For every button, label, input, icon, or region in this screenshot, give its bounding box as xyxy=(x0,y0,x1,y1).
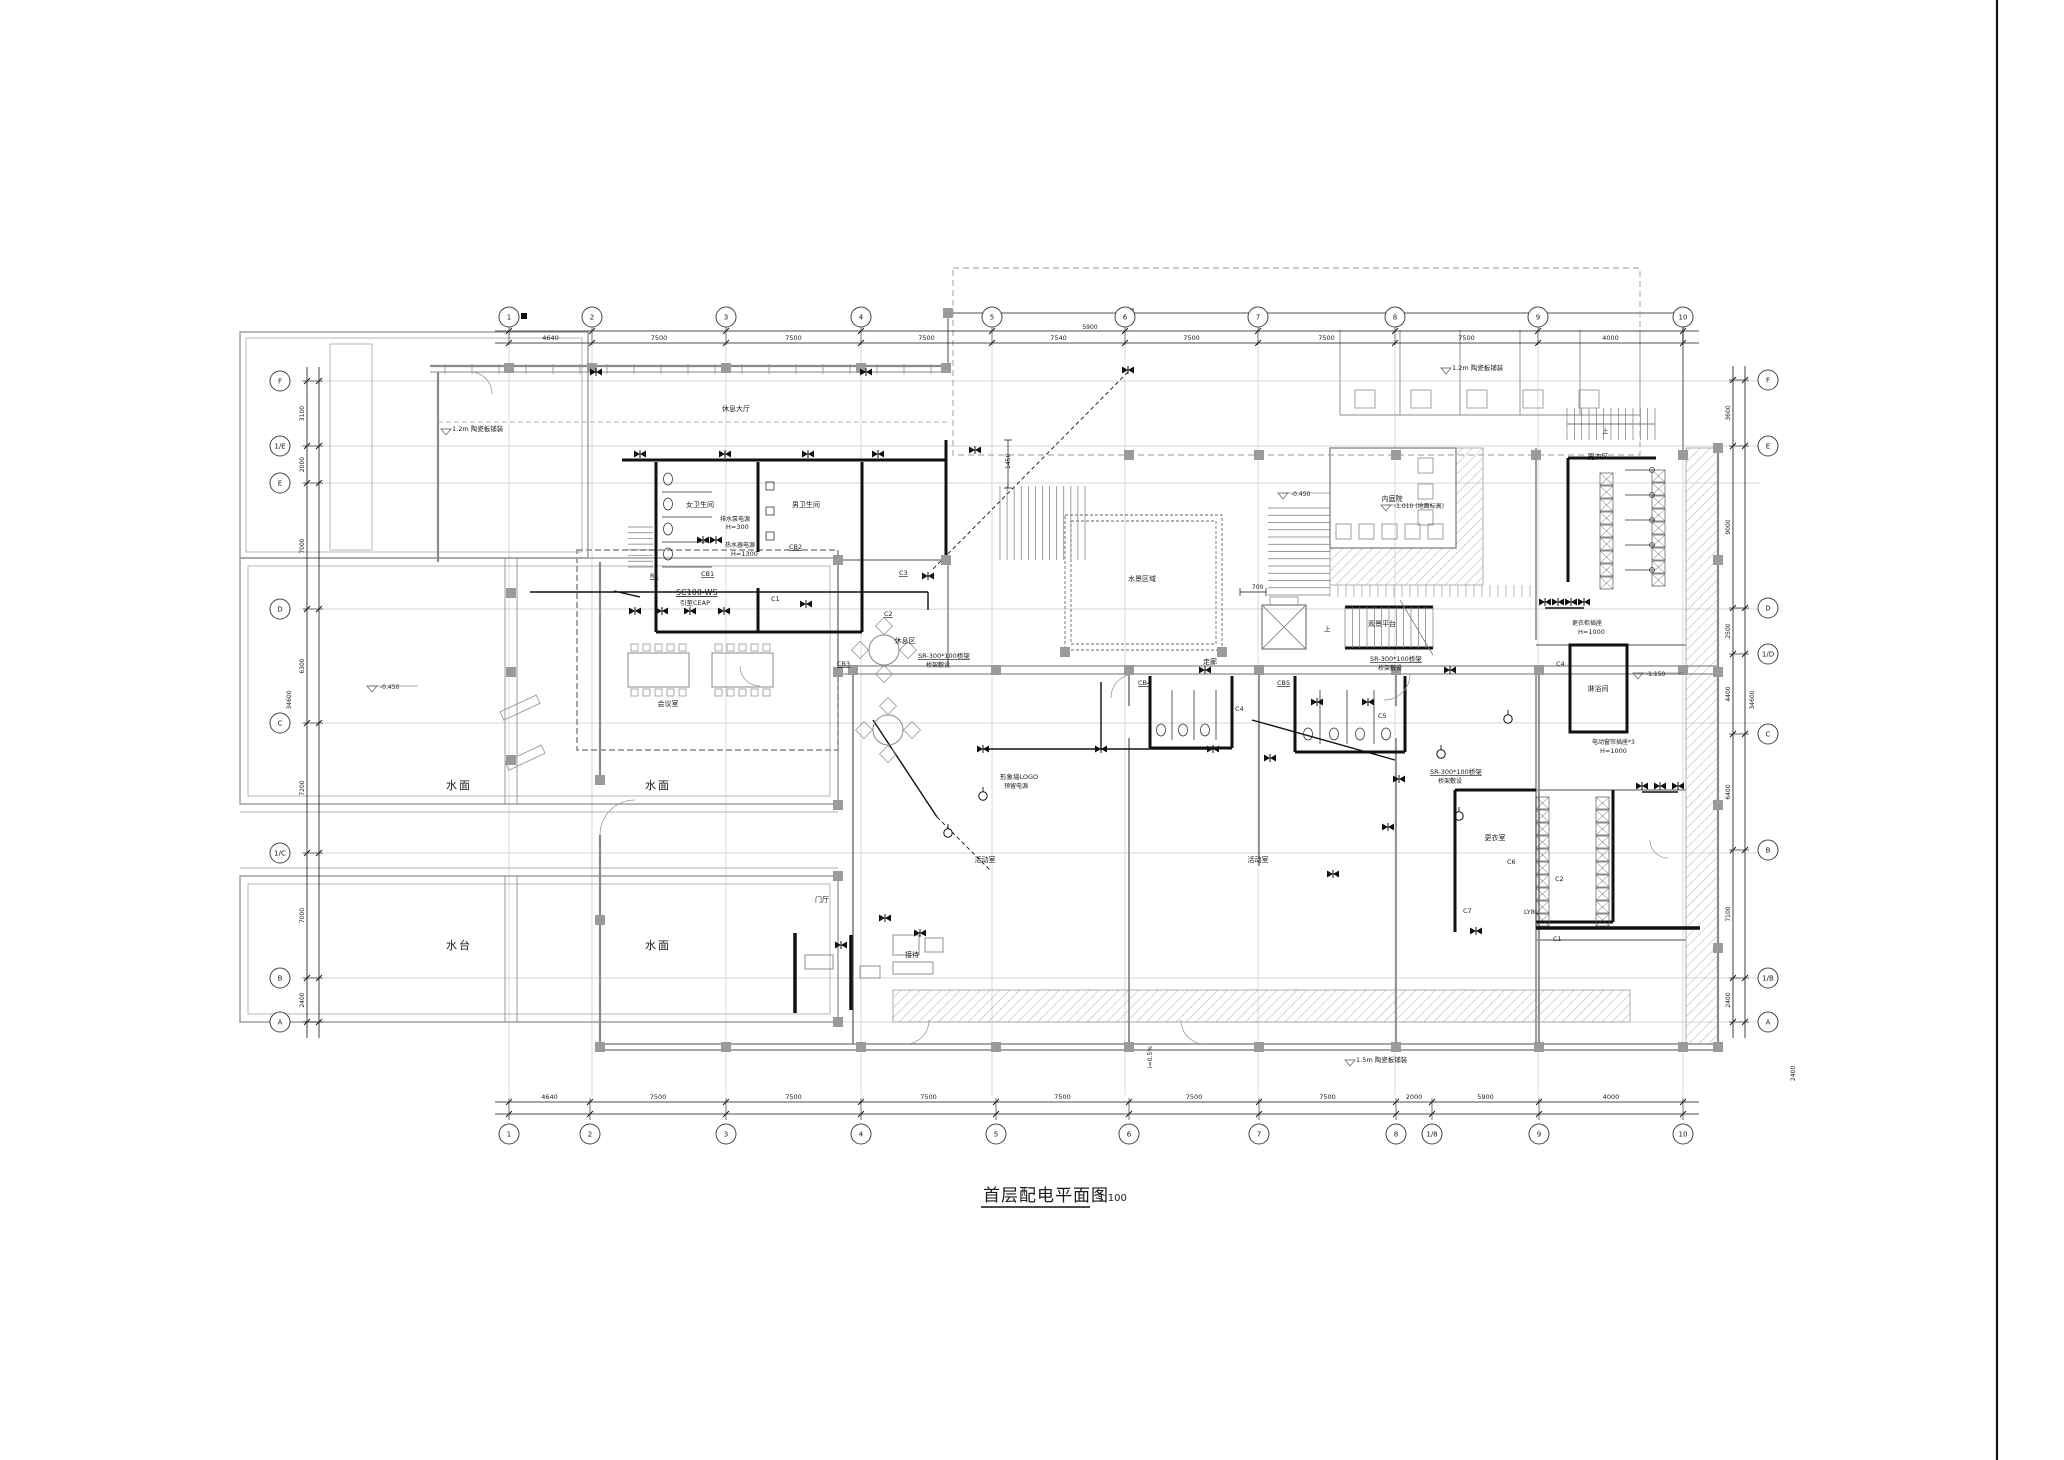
bowtie-device-icon xyxy=(710,536,722,544)
dim-text: 7500 xyxy=(1458,334,1475,342)
dim-text: 7540 xyxy=(1050,334,1067,342)
planter xyxy=(1336,524,1351,539)
locker-x xyxy=(1652,470,1665,482)
grid-bubble-label: B xyxy=(278,975,283,983)
urinal xyxy=(766,532,774,540)
dim-text: 7200 xyxy=(299,780,306,795)
wc-fixture xyxy=(1201,724,1210,736)
annotation: 更衣柜插座 xyxy=(1572,619,1602,627)
column xyxy=(1713,943,1723,953)
wc-fixture xyxy=(1304,728,1313,740)
dim-text: 2000 xyxy=(299,457,306,472)
locker-x xyxy=(1596,888,1609,900)
water-label: 水台 xyxy=(446,938,472,952)
grid-bubble-label: A xyxy=(278,1019,283,1027)
annotation: 预留电源 xyxy=(1004,782,1028,790)
column xyxy=(506,588,516,598)
grid-bubble-label: D xyxy=(277,606,282,614)
chair xyxy=(763,644,770,651)
meeting-block-dashed xyxy=(577,550,838,750)
chair xyxy=(727,689,734,696)
pond-walkway xyxy=(505,558,517,1022)
wc-fixture xyxy=(664,498,673,510)
annotation: 形象墙LOGO xyxy=(1000,772,1038,781)
chair xyxy=(655,644,662,651)
roof-room-unit xyxy=(1411,390,1431,408)
dim-text: 7500 xyxy=(1186,1093,1203,1101)
grid-bubble-label: E xyxy=(278,480,282,488)
bubble-marker-square xyxy=(521,313,527,319)
column xyxy=(1124,450,1134,460)
column xyxy=(1713,667,1723,677)
annotation: R1 xyxy=(650,572,659,580)
meeting-table xyxy=(712,653,773,687)
bowtie-device-icon xyxy=(1539,598,1551,606)
grid-bubble-label: 1 xyxy=(507,1131,511,1139)
bowtie-device-icon xyxy=(1552,598,1564,606)
locker-x xyxy=(1652,574,1665,586)
grid-bubble-label: 1/8 xyxy=(1426,1131,1437,1139)
annotation: C1 xyxy=(771,595,780,603)
door-swing xyxy=(905,1020,929,1044)
grid-bubble-label: 6 xyxy=(1127,1131,1132,1139)
bowtie-device-icon xyxy=(1199,666,1211,674)
annotation: 1.2m 陶瓷板铺装 xyxy=(1452,363,1504,372)
room-label: 接待 xyxy=(905,950,919,959)
room-label: 男卫生间 xyxy=(792,500,820,509)
locker-x xyxy=(1600,564,1613,576)
dim-text: 7500 xyxy=(920,1093,937,1101)
door-swing xyxy=(470,372,492,394)
annotation: CB4 xyxy=(1138,679,1151,687)
dim-text: 7500 xyxy=(1054,1093,1071,1101)
annotation: 700 xyxy=(1252,584,1264,591)
dim-text: 7500 xyxy=(1183,334,1200,342)
roof-room-unit xyxy=(1355,390,1375,408)
grid-bubble-label: B xyxy=(1766,847,1771,855)
annotation: CB5 xyxy=(1277,679,1290,687)
column xyxy=(833,667,843,677)
water-label: 水面 xyxy=(446,779,472,792)
annotation: 上 xyxy=(1324,624,1331,633)
planter xyxy=(1405,524,1420,539)
dim-text: 7000 xyxy=(299,538,306,553)
column xyxy=(943,308,953,318)
annotation: C4 xyxy=(1556,660,1565,668)
bowtie-device-icon xyxy=(1207,745,1219,753)
chair xyxy=(739,644,746,651)
column xyxy=(1678,1042,1688,1052)
wc-core-walls xyxy=(622,440,946,632)
dim-text: 2500 xyxy=(1725,623,1732,638)
chair xyxy=(751,644,758,651)
roof-room-unit xyxy=(1579,390,1599,408)
dim-text: 4640 xyxy=(542,334,559,342)
locker-x xyxy=(1596,810,1609,822)
locker-x xyxy=(1596,836,1609,848)
stepping-plank xyxy=(500,695,540,720)
annotation: SR-300*100桥架 xyxy=(1430,767,1482,776)
bowtie-device-icon xyxy=(1362,698,1374,706)
annotation: i=0.5% xyxy=(1147,1046,1154,1068)
locker-x xyxy=(1652,522,1665,534)
grid-bubble-label: C xyxy=(1766,731,1771,739)
dim-text: 7500 xyxy=(1318,334,1335,342)
locker-x xyxy=(1596,914,1609,926)
column xyxy=(1254,1042,1264,1052)
column xyxy=(506,667,516,677)
column xyxy=(595,915,605,925)
building-walls-gray xyxy=(430,313,1718,1050)
bowtie-device-icon xyxy=(1565,598,1577,606)
pond-southwest xyxy=(240,876,838,1022)
wc-fixture xyxy=(664,523,673,535)
annotation: H=300 xyxy=(726,523,749,531)
locker-x xyxy=(1600,499,1613,511)
chair xyxy=(631,689,638,696)
dim-text: 4000 xyxy=(1602,334,1619,342)
bowtie-device-icon xyxy=(697,536,709,544)
locker-x xyxy=(1596,823,1609,835)
diamond-chair xyxy=(852,642,869,659)
annotation: 电动窗帘插座*3 xyxy=(1592,738,1635,746)
dim-text: 5900 xyxy=(1477,1093,1494,1101)
grid-bubble-label: 5 xyxy=(990,314,994,322)
bowtie-device-icon xyxy=(718,607,730,615)
annotation: 1.2m 陶瓷板铺装 xyxy=(452,424,504,433)
grid-bubble-label: 6 xyxy=(1123,314,1128,322)
annotation: SR-300*100桥架 xyxy=(918,651,970,660)
dim-text: 6400 xyxy=(1725,784,1732,799)
column xyxy=(721,363,731,373)
column xyxy=(856,1042,866,1052)
dim-text: 2000 xyxy=(1406,1093,1423,1101)
grid-bubble-label: 1/B xyxy=(1762,975,1774,983)
pond-west xyxy=(240,558,838,804)
circle-device-icon xyxy=(944,824,952,837)
grid-bubble-label: 7 xyxy=(1257,1131,1261,1139)
dim-text: 6300 xyxy=(299,658,306,673)
stairs-and-fixtures xyxy=(445,364,1668,1044)
chair xyxy=(751,689,758,696)
annotation: 1.5m 陶瓷板铺装 xyxy=(1356,1055,1408,1064)
column xyxy=(1713,1042,1723,1052)
column xyxy=(833,800,843,810)
locker-x xyxy=(1652,561,1665,573)
annotation: 引至CEAP xyxy=(680,598,710,607)
text-labels: 水面水面水台水面休息大厅女卫生间男卫生间会议室休息区水景区域内庭院观景平台走廊更… xyxy=(367,363,1797,1081)
bowtie-device-icon xyxy=(802,450,814,458)
grid-bubble-label: 5 xyxy=(994,1131,998,1139)
locker-x xyxy=(1600,577,1613,589)
south-wc-blocks xyxy=(1150,676,1405,752)
reception-furniture xyxy=(805,955,833,969)
annotation: H=1000 xyxy=(1578,628,1605,636)
chair xyxy=(655,689,662,696)
room-label: 休息大厅 xyxy=(722,404,750,413)
locker-x xyxy=(1600,551,1613,563)
annotation: 桥架敷设 xyxy=(1438,777,1462,785)
column xyxy=(1124,1042,1134,1052)
chair xyxy=(763,689,770,696)
annotation: SR-300*100桥架 xyxy=(1370,654,1422,663)
water-label: 水面 xyxy=(645,939,671,952)
locker-x xyxy=(1652,496,1665,508)
dim-text: 2400 xyxy=(299,992,306,1007)
roof-room-unit xyxy=(1467,390,1487,408)
column xyxy=(833,555,843,565)
annotation: 热水器电源 xyxy=(725,541,755,549)
bowtie-device-icon xyxy=(656,607,668,615)
water-features xyxy=(240,332,838,1022)
room-label: 更衣区 xyxy=(1588,452,1609,461)
wc-fixture xyxy=(1356,728,1365,740)
bowtie-device-icon xyxy=(1470,927,1482,935)
dim-text: 2400 xyxy=(1725,992,1732,1007)
wc-fixture xyxy=(1157,724,1166,736)
annotation: CB3 xyxy=(837,660,850,668)
chair xyxy=(727,644,734,651)
level-text: -0.450 xyxy=(1291,491,1311,498)
diamond-chair xyxy=(876,618,893,635)
annotation: 2400 xyxy=(1790,1066,1797,1081)
east-paving-strip xyxy=(1686,448,1718,1044)
column xyxy=(595,1042,605,1052)
reception-furniture xyxy=(860,966,880,978)
grid-bubble-label: 9 xyxy=(1537,1131,1541,1139)
dim-text: 7500 xyxy=(785,1093,802,1101)
column xyxy=(506,755,516,765)
grid-bubble-label: 4 xyxy=(859,314,864,322)
grid-bubble-label: 4 xyxy=(859,1131,864,1139)
locker-x xyxy=(1596,862,1609,874)
drawing-scale: 1:100 xyxy=(1098,1193,1127,1204)
annotation: LY8L xyxy=(1524,908,1539,916)
bowtie-device-icon xyxy=(872,450,884,458)
grid-bubble-label: 3 xyxy=(724,314,728,322)
annotation: C6 xyxy=(1507,858,1516,866)
bowtie-device-icon xyxy=(1578,598,1590,606)
chair xyxy=(679,689,686,696)
column xyxy=(1391,1042,1401,1052)
column xyxy=(1534,665,1544,675)
annotation: 1450 xyxy=(1005,454,1012,469)
annotation: C2 xyxy=(884,610,893,618)
reception-furniture xyxy=(925,938,943,952)
annotation: 桥架敷设 xyxy=(1378,664,1402,672)
column xyxy=(1531,450,1541,460)
dim-text: 7100 xyxy=(1725,906,1732,921)
column xyxy=(721,1042,731,1052)
grid-bubble-label: 1/C xyxy=(274,850,286,858)
room-label: 水景区域 xyxy=(1128,574,1156,583)
level-marker-icon xyxy=(1345,1060,1355,1066)
dim-text: 7500 xyxy=(785,334,802,342)
dim-total: 34600 xyxy=(286,690,293,709)
grid-bubble-label: D xyxy=(1765,605,1770,613)
grid-bubble-label: A xyxy=(1766,1019,1771,1027)
chair xyxy=(715,644,722,651)
annotation: 桥架敷设 xyxy=(926,661,950,669)
bowtie-device-icon xyxy=(977,745,989,753)
title-block: 首层配电平面图 1:100 xyxy=(981,1186,1127,1207)
column xyxy=(833,871,843,881)
bowtie-device-icon xyxy=(1327,870,1339,878)
column xyxy=(991,1042,1001,1052)
wc-fixture xyxy=(1179,724,1188,736)
water-label: 水面 xyxy=(645,779,671,792)
planter xyxy=(1418,510,1433,525)
locker-x xyxy=(1600,512,1613,524)
column xyxy=(1534,1042,1544,1052)
bowtie-device-icon xyxy=(835,941,847,949)
column xyxy=(504,363,514,373)
bowtie-device-icon xyxy=(1311,698,1323,706)
diamond-chair xyxy=(880,698,897,715)
chair xyxy=(643,644,650,651)
annotation: C5 xyxy=(1378,712,1387,720)
bowtie-device-icon xyxy=(922,572,934,580)
column xyxy=(1060,647,1070,657)
diamond-chair xyxy=(904,722,921,739)
level-text: -1.150 xyxy=(1646,671,1666,678)
chair xyxy=(679,644,686,651)
chair xyxy=(631,644,638,651)
room-label: 走廊 xyxy=(1203,657,1217,666)
wc-fixture xyxy=(1382,728,1391,740)
dim-text: 7000 xyxy=(299,908,306,923)
round-table xyxy=(873,715,903,745)
grid-bubble-label: 1 xyxy=(507,314,511,322)
dim-text: 7500 xyxy=(650,1093,667,1101)
bowtie-device-icon xyxy=(1264,754,1276,762)
door-swing xyxy=(1111,674,1135,698)
room-label: 女卫生间 xyxy=(686,500,714,509)
dim-text: 7500 xyxy=(918,334,935,342)
wc-stalls xyxy=(662,492,1374,744)
room-label: 会议室 xyxy=(658,699,679,708)
chair xyxy=(739,689,746,696)
locker-x xyxy=(1600,525,1613,537)
column xyxy=(991,665,1001,675)
dim-text: 4640 xyxy=(541,1093,558,1101)
room-label: 活动室 xyxy=(1248,855,1269,864)
level-text: -0.450 xyxy=(380,684,400,691)
locker-x xyxy=(1596,901,1609,913)
bowtie-device-icon xyxy=(879,914,891,922)
circle-device-icon xyxy=(1504,710,1512,723)
main-corridor xyxy=(838,666,1718,674)
dim-total: 34600 xyxy=(1749,690,1756,709)
bowtie-device-icon xyxy=(1672,782,1684,790)
dim-text: 7500 xyxy=(1319,1093,1336,1101)
chair xyxy=(715,689,722,696)
east-rooms-partitions xyxy=(1536,448,1686,1044)
grid-bubble-label: 9 xyxy=(1536,314,1540,322)
level-marker-icon xyxy=(1441,368,1451,374)
pond-lane xyxy=(330,344,372,550)
locker-x xyxy=(1600,538,1613,550)
column xyxy=(1124,665,1134,675)
dim-text: 3600 xyxy=(1725,405,1732,420)
dim-text: 7500 xyxy=(651,334,668,342)
room-label: 观景平台 xyxy=(1368,619,1396,628)
drawing-sheet: 1234567891046407500750075007540750075007… xyxy=(0,0,2064,1460)
column xyxy=(1254,665,1264,675)
column xyxy=(1678,450,1688,460)
room-partitions xyxy=(853,674,1539,1044)
bowtie-device-icon xyxy=(1636,782,1648,790)
locker-x xyxy=(1652,483,1665,495)
column xyxy=(1678,665,1688,675)
planter xyxy=(1418,484,1433,499)
door-swing xyxy=(1650,840,1668,858)
locker-x xyxy=(1596,875,1609,887)
grid-bubble-label: 2 xyxy=(590,314,594,322)
meeting-table xyxy=(628,653,689,687)
wc-fixture xyxy=(1330,728,1339,740)
grid-bubble-label: 3 xyxy=(724,1131,728,1139)
south-walkway-hatch xyxy=(893,990,1630,1022)
room-label: 内庭院 xyxy=(1382,494,1403,503)
column xyxy=(1254,450,1264,460)
planter xyxy=(1418,458,1433,473)
column xyxy=(1391,450,1401,460)
level-marker-icon xyxy=(367,686,377,692)
terrace-hatch xyxy=(1330,448,1483,585)
black-wall-cores xyxy=(530,372,1700,1013)
level-text: -1.010 (地面标高) xyxy=(1394,502,1444,510)
door-swing xyxy=(600,800,635,835)
dim-text: 9000 xyxy=(1725,519,1732,534)
grid-bubble-label: F xyxy=(1766,377,1770,385)
hatched-paving-areas xyxy=(893,448,1718,1044)
roof-room-unit xyxy=(1523,390,1543,408)
level-marker-icon xyxy=(1278,493,1288,499)
bowtie-device-icon xyxy=(1382,823,1394,831)
circle-device-icon xyxy=(1437,745,1445,758)
locker-x xyxy=(1652,535,1665,547)
dim-text: 5900 xyxy=(1082,324,1097,331)
column xyxy=(1713,800,1723,810)
room-label: 休息区 xyxy=(895,636,916,645)
annotation: CB1 xyxy=(701,570,714,578)
floor-plan-canvas: 1234567891046407500750075007540750075007… xyxy=(0,0,2064,1460)
bowtie-device-icon xyxy=(800,600,812,608)
column xyxy=(1713,443,1723,453)
cable-tray-runs xyxy=(530,591,1678,817)
south-facade xyxy=(600,1044,1718,1050)
bowtie-device-icon xyxy=(629,607,641,615)
grid-bubble-label: C xyxy=(278,720,283,728)
locker-x xyxy=(1600,486,1613,498)
grid-bubble-label: E xyxy=(1766,443,1770,451)
annotation: H=1000 xyxy=(1600,747,1627,755)
diamond-chair xyxy=(880,746,897,763)
bowtie-device-icon xyxy=(914,929,926,937)
column xyxy=(1713,555,1723,565)
annotation: C2 xyxy=(1555,875,1564,883)
door-swing xyxy=(740,666,760,686)
locker-x xyxy=(1596,797,1609,809)
room-label: 门厅 xyxy=(815,895,829,904)
grid-bubble-label: 1/E xyxy=(274,443,285,451)
grid-bubble-label: 7 xyxy=(1256,314,1260,322)
grid-bubble-label: 2 xyxy=(588,1131,592,1139)
bowtie-device-icon xyxy=(1095,745,1107,753)
annotation: 排水泵电源 xyxy=(720,515,750,523)
annotation: C4 xyxy=(1235,705,1244,713)
